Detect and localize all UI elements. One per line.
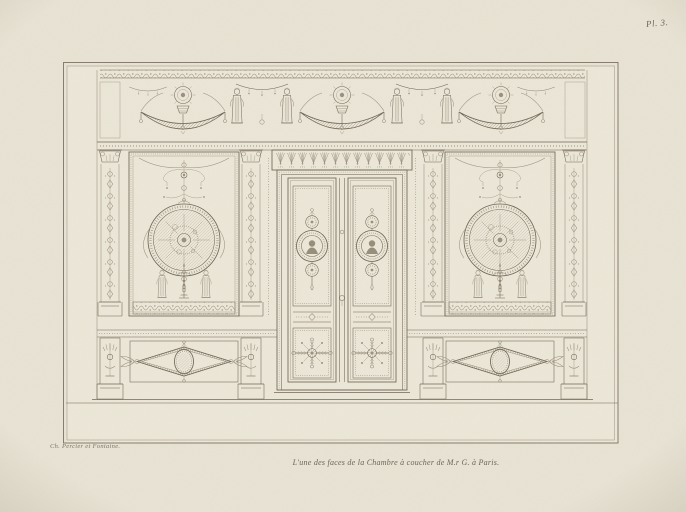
artist-signature: Ch. Percier et Fontaine. — [50, 443, 120, 450]
plate-number: Pl. 3. — [645, 17, 668, 29]
engraving-plate-sheet: Pl. 3. Ch. Percier et Fontaine. L'une de… — [0, 0, 686, 512]
caption: L'une des faces de la Chambre à coucher … — [250, 458, 542, 467]
paper-grain — [0, 0, 686, 512]
engraving — [0, 0, 686, 512]
